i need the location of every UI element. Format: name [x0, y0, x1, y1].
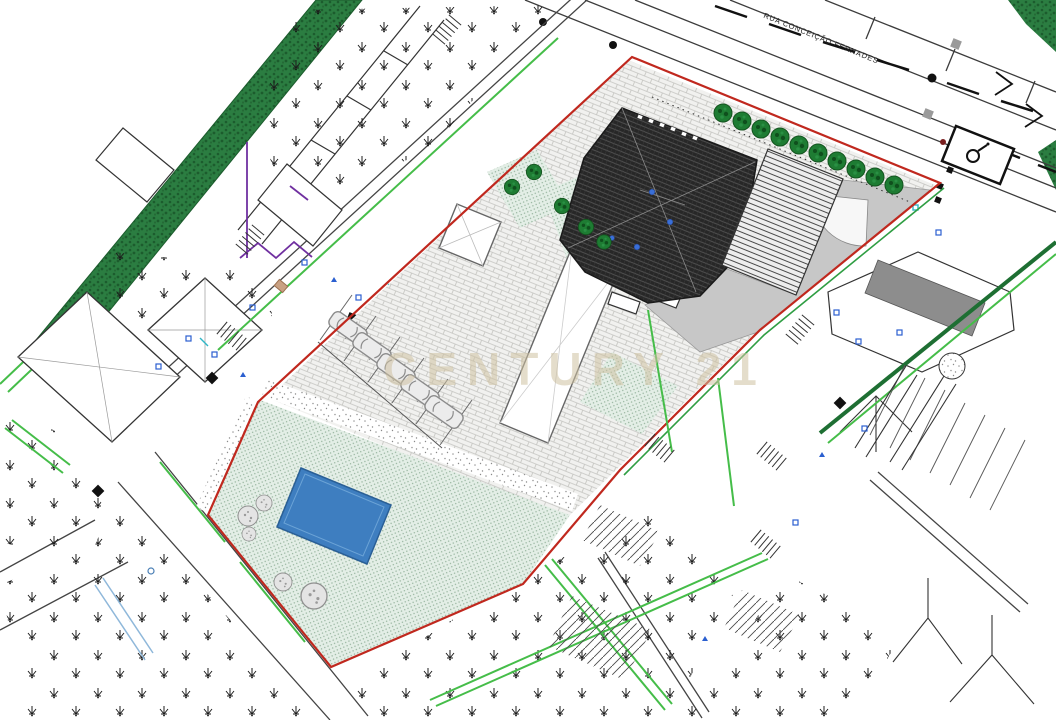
tree-icon: [847, 160, 865, 178]
tree-icon: [809, 144, 827, 162]
site-plan: RUA CONCEIÇÃO FERNADES CENTURY 21: [0, 0, 1056, 720]
tree-icon: [578, 219, 593, 234]
tree-icon: [504, 179, 519, 194]
tree-icon: [790, 136, 808, 154]
tree-icon: [733, 112, 751, 130]
tree-canopy-stippled: [939, 353, 965, 379]
tree-icon: [526, 164, 541, 179]
tree-icon: [752, 120, 770, 138]
tree-icon: [554, 198, 569, 213]
tree-icon: [714, 104, 732, 122]
tree-icon: [597, 235, 611, 249]
tree-icon: [885, 176, 903, 194]
tree-icon: [771, 128, 789, 146]
tree-icon: [828, 152, 846, 170]
site-plan-canvas: RUA CONCEIÇÃO FERNADES CENTURY 21: [0, 0, 1056, 720]
manhole-dot: [928, 74, 937, 83]
tree-icon: [866, 168, 884, 186]
watermark: CENTURY 21: [383, 343, 767, 395]
